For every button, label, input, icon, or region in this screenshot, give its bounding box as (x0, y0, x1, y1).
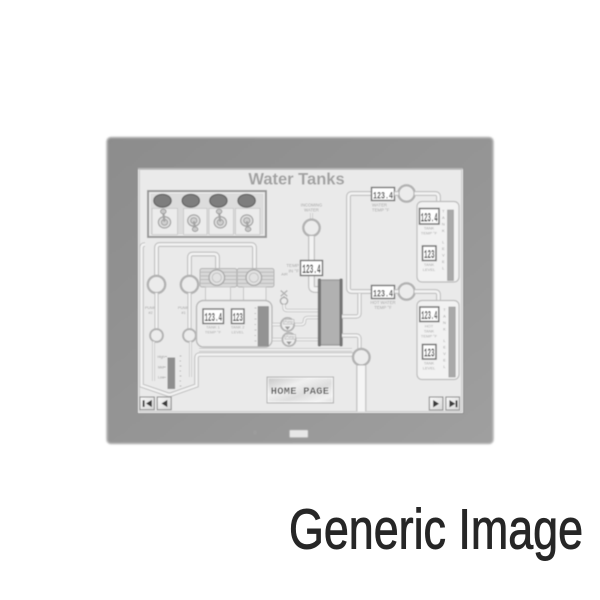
svg-text:WATER: WATER (304, 208, 319, 213)
svg-text:High: High (158, 355, 165, 359)
svg-text:Pump: Pump (285, 320, 294, 324)
svg-text:E: E (442, 259, 445, 264)
svg-text:123: 123 (424, 348, 435, 361)
svg-text:A: A (443, 314, 446, 319)
svg-text:TEMP °F: TEMP °F (421, 231, 438, 236)
svg-text:TEMP °F: TEMP °F (374, 305, 392, 310)
svg-text:123.4: 123.4 (421, 310, 437, 323)
svg-text:E: E (443, 358, 446, 363)
svg-text:TEMP: TEMP (286, 263, 299, 268)
svg-text:#1: #1 (181, 310, 185, 315)
svg-text:HOME PAGE: HOME PAGE (271, 386, 330, 398)
svg-text:123.4: 123.4 (421, 212, 438, 226)
svg-text:N: N (442, 222, 445, 227)
svg-text:E: E (442, 246, 445, 251)
svg-text:123: 123 (233, 312, 243, 325)
svg-text:TEMP °F: TEMP °F (205, 330, 222, 335)
svg-text:AIR: AIR (281, 272, 288, 277)
svg-text:A: A (442, 215, 445, 220)
svg-text:N: N (443, 320, 446, 325)
svg-text:Low: Low (158, 376, 165, 380)
svg-text:TEMP °F: TEMP °F (372, 208, 390, 213)
svg-text:V: V (442, 253, 445, 258)
svg-text:Mid: Mid (158, 365, 164, 369)
svg-text:IN °F: IN °F (288, 269, 299, 274)
svg-text:LEVEL: LEVEL (231, 330, 244, 335)
svg-text:Pump: Pump (286, 335, 295, 339)
svg-text:123.4: 123.4 (373, 190, 393, 202)
svg-text:123: 123 (424, 249, 435, 262)
svg-text:V: V (443, 351, 446, 356)
svg-text:LEVEL: LEVEL (423, 267, 436, 272)
svg-text:#2: #2 (148, 310, 152, 315)
svg-text:Water Tanks: Water Tanks (248, 171, 344, 189)
svg-text:123.4: 123.4 (373, 288, 393, 300)
svg-text:123.4: 123.4 (205, 312, 223, 325)
svg-text:E: E (443, 345, 446, 350)
svg-text:K: K (443, 327, 446, 332)
svg-text:123.4: 123.4 (302, 263, 321, 277)
svg-text:K: K (442, 228, 445, 233)
svg-text:Generic Image: Generic Image (289, 498, 583, 562)
svg-text:TEMP °F: TEMP °F (421, 334, 438, 339)
svg-text:LEVEL: LEVEL (423, 366, 436, 371)
